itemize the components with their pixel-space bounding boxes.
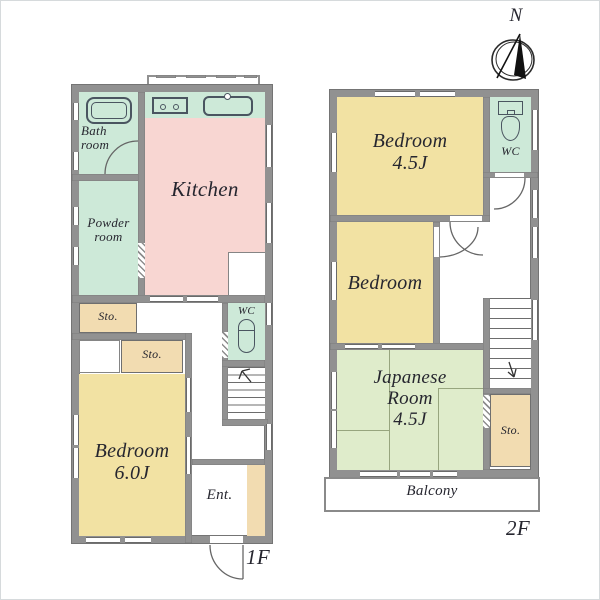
sliding-door-powder: [138, 243, 145, 278]
kitchen-sliding-door: [150, 296, 183, 302]
balcony-label: Balcony: [324, 483, 540, 500]
bay-window-mullion: [216, 75, 236, 78]
window: [331, 262, 337, 300]
window: [73, 152, 79, 170]
wall: [222, 360, 265, 367]
wall: [72, 333, 192, 340]
wall: [483, 97, 490, 222]
kitchen-alcove: [228, 252, 265, 296]
bedroom-a-label: Bedroom 4.5J: [337, 130, 483, 174]
window: [331, 372, 337, 409]
window: [266, 424, 272, 450]
window: [532, 300, 538, 340]
bedroom-a-door-opening: [450, 216, 482, 221]
bathtub-icon: [86, 97, 132, 124]
stove-icon: [152, 97, 188, 114]
compass-north-label: N: [504, 6, 528, 27]
powder-room-label: Powder room: [79, 216, 138, 245]
entrance-step: [247, 465, 265, 536]
window: [266, 203, 272, 243]
window: [420, 91, 455, 97]
toilet-tank-notch: [507, 110, 515, 115]
floor2-label: 2F: [496, 517, 540, 540]
window: [73, 207, 79, 225]
wc-2f-label: WC: [490, 145, 531, 158]
storage-bedroom-label: Sto.: [121, 348, 183, 361]
bedroom-door-opening: [186, 437, 191, 474]
window: [73, 448, 79, 478]
window: [532, 110, 538, 150]
bathroom-label: Bath room: [81, 124, 137, 153]
closet-1f: [79, 340, 120, 373]
window: [532, 227, 538, 258]
entrance-door-opening: [210, 536, 243, 543]
window: [86, 537, 120, 543]
toilet-seat-line: [239, 330, 254, 331]
sliding-door: [382, 344, 415, 349]
wc-2f-door-opening: [495, 173, 524, 177]
window: [125, 537, 151, 543]
stairs-1f: [228, 367, 265, 419]
bathtub-inner: [91, 102, 127, 119]
north-arrow-icon: [490, 30, 540, 84]
kitchen-label: Kitchen: [145, 178, 265, 201]
window: [331, 133, 337, 172]
sliding-door: [345, 344, 378, 349]
floor1-label: 1F: [238, 546, 278, 569]
stove-burner: [173, 104, 179, 110]
stairs-2f: [490, 298, 531, 388]
window: [375, 91, 415, 97]
bedroom-1f-label: Bedroom 6.0J: [79, 440, 185, 484]
storage-hall-label: Sto.: [79, 310, 137, 323]
bay-window-mullion: [186, 75, 206, 78]
wall: [222, 419, 268, 426]
bay-window-mullion: [244, 75, 257, 78]
window: [532, 190, 538, 218]
storage-2f-label: Sto.: [490, 424, 531, 437]
entrance-label: Ent.: [192, 487, 247, 504]
bay-window-mullion: [156, 75, 176, 78]
stove-burner: [160, 104, 166, 110]
window: [73, 247, 79, 265]
wall: [72, 174, 145, 181]
bedroom-b-door-opening: [434, 227, 439, 257]
floor-plan-canvas: Bath room Powder room Kitchen Sto. WC St…: [0, 0, 600, 600]
japanese-room-label: Japanese Room 4.5J: [337, 368, 483, 431]
wall: [483, 298, 490, 470]
window: [266, 125, 272, 167]
window: [73, 415, 79, 445]
faucet-icon: [224, 93, 231, 100]
wc-1f-label: WC: [228, 305, 265, 317]
window: [73, 103, 79, 120]
bedroom-door-opening: [186, 378, 191, 412]
window: [266, 303, 272, 325]
toilet-icon-1f: [238, 319, 255, 353]
bedroom-b-label: Bedroom: [337, 272, 433, 294]
kitchen-sliding-door: [187, 296, 218, 302]
window: [331, 411, 337, 448]
sliding-door-japanese: [483, 395, 490, 428]
sliding-door-wc-1f: [222, 332, 228, 358]
